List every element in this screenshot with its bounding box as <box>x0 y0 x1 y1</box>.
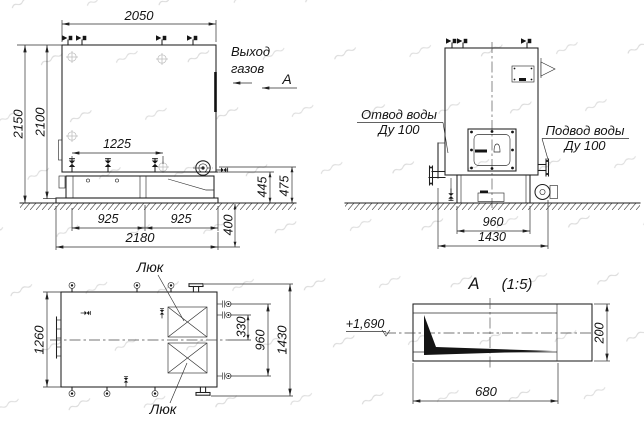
dim-text: 400 <box>221 215 235 236</box>
dim-text: 330 <box>234 317 248 338</box>
door-handle-icon <box>475 150 487 153</box>
section-letter: А <box>281 71 291 87</box>
label-text: Отвод воды <box>361 107 437 122</box>
dim-text: 960 <box>483 215 504 229</box>
gas-outlet-label: Выход <box>231 44 270 59</box>
label-text: Подвод воды <box>546 123 625 138</box>
dim-text: 200 <box>592 323 606 345</box>
dim-text: 2050 <box>124 8 155 23</box>
dim-text: 1430 <box>478 230 506 244</box>
dim-text: 2180 <box>125 230 156 245</box>
hatch-top-label: Люк <box>136 259 165 275</box>
label-text: Ду 100 <box>562 138 606 153</box>
elevation-text: +1,690 <box>346 317 385 331</box>
dim-text: 475 <box>277 176 291 197</box>
dim-text: 960 <box>253 330 267 351</box>
dim-text: 925 <box>98 212 119 226</box>
ground-hatching <box>20 204 296 211</box>
ground-hatching <box>345 204 640 211</box>
detail-title-scale: (1:5) <box>502 276 533 293</box>
dim-text: 680 <box>475 384 497 399</box>
dim-text: 925 <box>171 212 192 226</box>
dim-text: 2150 <box>10 109 25 140</box>
dim-text: 445 <box>255 177 269 198</box>
dim-text: 1260 <box>31 325 46 355</box>
detail-title-letter: А <box>467 275 479 293</box>
gas-outlet-label: газов <box>231 61 264 76</box>
drawing-sheet: 2050 2150 2100 1225 445 475 <box>0 0 644 430</box>
dim-text: 1225 <box>103 137 131 151</box>
dim-text: 2100 <box>32 107 47 138</box>
label-text: Ду 100 <box>376 122 420 137</box>
hatch-bottom-label: Люк <box>149 401 178 417</box>
dim-text: 1430 <box>274 325 289 355</box>
